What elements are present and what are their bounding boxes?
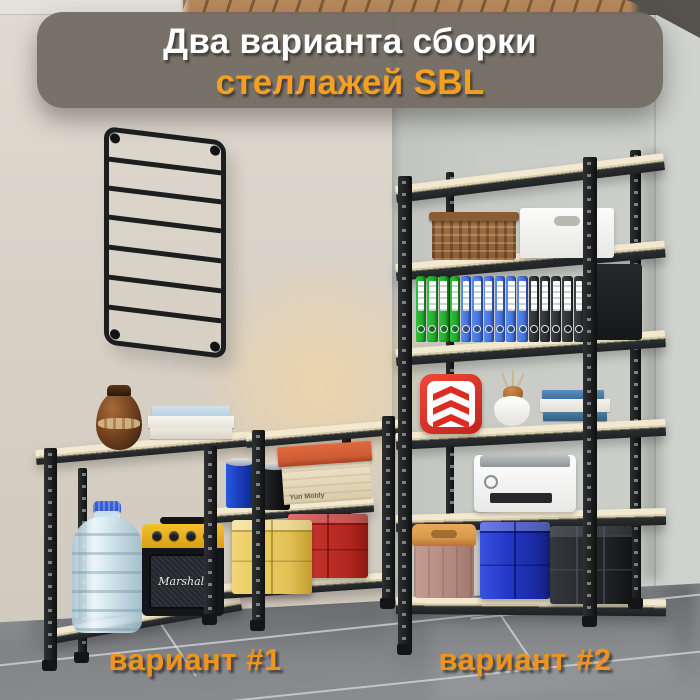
vase-pot <box>494 396 530 426</box>
book <box>148 416 234 428</box>
chevron <box>433 386 469 401</box>
chevron <box>433 414 469 427</box>
cooler-box <box>414 524 474 598</box>
title-line-1: Два варианта сборки <box>37 21 663 62</box>
shelf-post <box>398 176 412 646</box>
variant2-label: вариант #2 <box>385 642 665 678</box>
binder-green <box>439 276 449 342</box>
binder-green <box>450 276 460 342</box>
wall-rack-mount <box>210 341 220 352</box>
binder-blue <box>472 276 482 342</box>
book <box>150 428 232 439</box>
shelf-foot <box>202 614 217 625</box>
printer-output-slot <box>490 493 552 503</box>
shelf-post <box>583 157 597 619</box>
wall-rack-mount <box>110 329 120 340</box>
binder-blue <box>517 276 527 342</box>
binder-dark <box>551 276 561 342</box>
shelf-foot <box>250 620 265 631</box>
book <box>543 412 607 421</box>
title-line-2: стеллажей SBL <box>37 62 663 103</box>
red-logo-box-face <box>427 381 475 427</box>
speaker-handle <box>160 517 206 524</box>
cooler-lid <box>412 524 476 546</box>
binder-blue <box>495 276 505 342</box>
chevron <box>433 400 469 415</box>
speaker-knob <box>169 531 179 541</box>
decor-vase <box>490 380 534 426</box>
variant1-label: вариант #1 <box>55 642 335 678</box>
wall-ladder-rack <box>104 126 226 359</box>
title-banner: Два варианта сборки стеллажей SBL <box>37 12 663 108</box>
cardboard-box: Yun Moldy <box>280 441 372 505</box>
shelf-foot <box>380 598 395 609</box>
speaker-knob <box>152 531 162 541</box>
ceramic-vase <box>96 392 142 450</box>
cooler-body <box>414 546 474 598</box>
binder-dark <box>562 276 572 342</box>
bottle-body <box>72 517 142 633</box>
speaker-knob <box>186 531 196 541</box>
shelf-post <box>204 446 217 616</box>
binder-dark <box>540 276 550 342</box>
binder-blue <box>461 276 471 342</box>
binder-blue <box>484 276 494 342</box>
wall-rack-mount <box>210 145 220 156</box>
printer-scanner-lid <box>480 455 570 467</box>
binder-green <box>416 276 426 342</box>
scene-root: Marshall Yun Moldy <box>0 0 700 700</box>
book-stack <box>540 390 610 422</box>
book-stack <box>148 406 234 440</box>
binder-green <box>427 276 437 342</box>
shelf-post <box>382 416 395 602</box>
shelf-foot <box>628 598 643 609</box>
printer-power-button <box>484 475 498 489</box>
cardboard-box-text: Yun Moldy <box>289 492 324 501</box>
speaker-logo-text: Marshall <box>158 575 207 588</box>
red-logo-box <box>420 374 482 434</box>
book <box>152 406 230 416</box>
yellow-crate <box>232 520 312 594</box>
wall-rack-mount <box>110 133 120 144</box>
water-bottle <box>72 505 142 633</box>
printer <box>474 455 576 512</box>
shelf-post <box>252 430 265 622</box>
white-storage-box <box>520 208 614 258</box>
shelf-post <box>44 448 57 662</box>
binder-dark <box>529 276 539 342</box>
shelf-foot <box>582 616 597 627</box>
blue-crate <box>480 522 550 599</box>
wicker-basket <box>432 218 516 260</box>
binder-blue <box>506 276 516 342</box>
binder-row <box>416 276 584 342</box>
paint-can-blue <box>226 462 254 508</box>
book <box>540 399 610 412</box>
cardboard-box-body: Yun Moldy <box>281 461 371 505</box>
